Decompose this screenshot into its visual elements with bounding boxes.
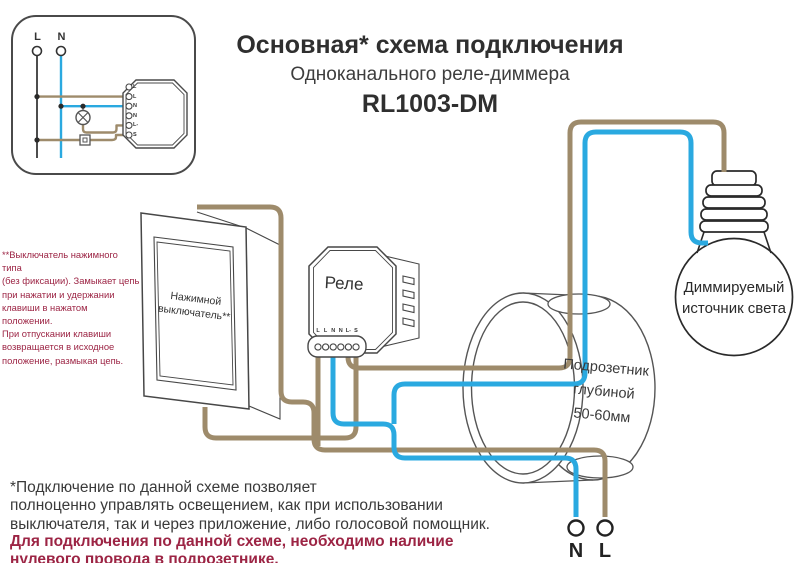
inset-module-terminal-label: L- (133, 122, 147, 128)
mains-live-label: L (593, 540, 617, 563)
inset-phase-label: L (30, 31, 45, 43)
relay-label: Реле (315, 272, 374, 295)
mains-neutral-label: N (564, 540, 588, 563)
inset-module-terminal-label: N (133, 103, 147, 109)
mounting-box-label: Подрозетник глубиной 50-60мм (542, 351, 666, 433)
inset-switch-icon (80, 135, 90, 145)
relay-terminal-label: S (351, 328, 361, 334)
switch-footnote: **Выключатель нажимного типа (без фиксац… (2, 248, 140, 367)
wiring-diagram-page: Основная* схема подключения Одноканально… (0, 0, 800, 563)
relay-terminal-strip (308, 336, 366, 357)
page-subtitle: Одноканального реле-диммера (150, 64, 710, 86)
mains-live-terminal (598, 521, 613, 536)
mains-neutral-terminal (569, 521, 584, 536)
bulb-cap (712, 171, 756, 186)
inset-neutral-terminal (57, 47, 66, 56)
inset-module-terminal-label: L (133, 84, 147, 90)
bulb-label: Диммируемый источник света (670, 277, 798, 319)
page-title: Основная* схема подключения (150, 31, 710, 60)
inset-module-terminal-label: S (133, 132, 147, 138)
mains-terminals (569, 521, 613, 536)
inset-module-terminal-label: N (133, 113, 147, 119)
footer-note: *Подключение по данной схеме позволяет п… (10, 479, 490, 534)
inset-lamp-icon (76, 111, 90, 125)
inset-phase-terminal (33, 47, 42, 56)
inset-neutral-label: N (54, 31, 69, 43)
footer-warning: Для подключения по данной схеме, необход… (10, 533, 490, 563)
model-name: RL1003-DM (150, 90, 710, 119)
inset-module-terminal-label: L (133, 94, 147, 100)
box-top-tube (548, 294, 610, 314)
